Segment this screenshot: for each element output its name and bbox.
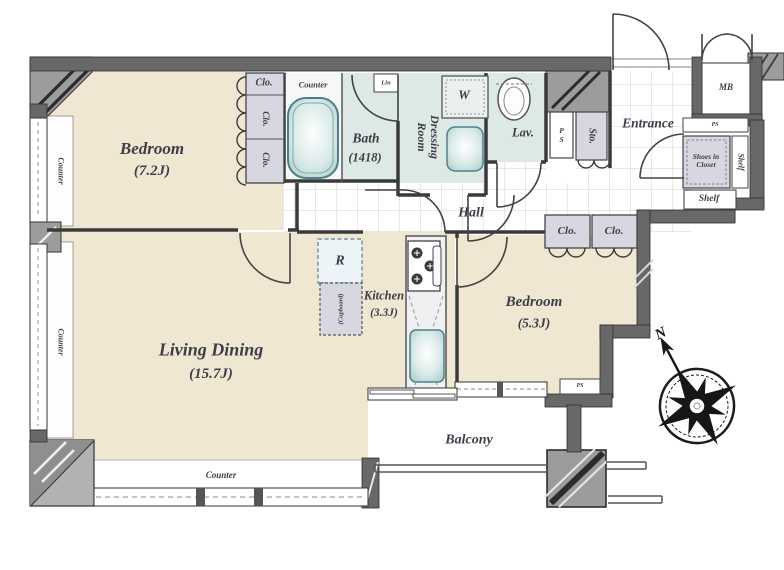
closet-label-4: Clo. bbox=[558, 226, 577, 238]
bedroom1-name: Bedroom bbox=[120, 140, 184, 158]
counter-label-left-2: Counter bbox=[56, 328, 65, 355]
window-mullion-2 bbox=[254, 488, 263, 506]
entrance-door bbox=[613, 14, 669, 70]
floor-plan-drawing bbox=[0, 0, 784, 570]
closet-label-2: Clo. bbox=[260, 111, 270, 126]
entrance-threshold bbox=[611, 59, 692, 67]
bedroom2-area: (5.3J) bbox=[518, 317, 551, 332]
floor-plan: Bedroom (7.2J) Living Dining (15.7J) Kit… bbox=[0, 0, 784, 570]
shoes-closet-label: Shoes in Closet bbox=[693, 153, 719, 169]
kitchen-name: Kitchen bbox=[364, 289, 404, 303]
balcony-rails bbox=[375, 462, 662, 503]
compass-rose bbox=[622, 316, 757, 465]
wall-left-b bbox=[30, 430, 47, 442]
balcony-label: Balcony bbox=[445, 432, 492, 447]
counter-label-bottom: Counter bbox=[206, 471, 237, 481]
bedroom2-name: Bedroom bbox=[506, 294, 563, 310]
meter-box-label: MB bbox=[719, 83, 733, 93]
stove-grill bbox=[433, 246, 441, 286]
bath-name: Bath bbox=[352, 132, 379, 147]
cupboard-label: (Cupboard) bbox=[337, 293, 344, 324]
window-mullion-1 bbox=[196, 488, 205, 506]
wall-above-bedroom2 bbox=[637, 210, 735, 223]
hall-label: Hall bbox=[458, 205, 484, 220]
pipe-space-label-1: PS bbox=[557, 126, 565, 144]
window-mullion-3 bbox=[497, 382, 503, 397]
meter-box-doors bbox=[702, 34, 752, 60]
bathtub bbox=[288, 98, 338, 178]
refrigerator-label: R bbox=[335, 253, 344, 268]
counter-label-bath: Counter bbox=[299, 80, 328, 89]
lavatory-label: Lav. bbox=[512, 126, 534, 140]
dressing-room-line1: Dressing bbox=[428, 115, 441, 159]
wall-bedroom2-east bbox=[637, 210, 650, 332]
living-dining-area: (15.7J) bbox=[189, 366, 233, 382]
closet-label-1: Clo. bbox=[256, 79, 273, 90]
pipe-space-label-2: PS bbox=[711, 122, 718, 128]
shelf-label-horizontal: Shelf bbox=[699, 194, 720, 204]
wall-right bbox=[750, 120, 764, 206]
vanity-sink bbox=[447, 127, 483, 171]
closet-label-5: Clo. bbox=[605, 226, 624, 238]
bedroom1-area: (7.2J) bbox=[134, 163, 170, 179]
pipe-space-label-3: PS bbox=[576, 383, 583, 389]
shelf-label-vertical: Shelf bbox=[736, 153, 745, 170]
storage-label: Sto. bbox=[586, 128, 597, 144]
counter-label-left-1: Counter bbox=[56, 157, 65, 184]
dressing-room-line2: Room bbox=[415, 115, 428, 159]
dressing-room-label: Dressing Room bbox=[415, 115, 441, 159]
washer-label: W bbox=[458, 88, 470, 102]
bath-area: (1418) bbox=[348, 151, 381, 165]
linen-label: Lin bbox=[381, 79, 390, 86]
shoes-closet-line2: Closet bbox=[693, 161, 719, 169]
kitchen-sink bbox=[410, 330, 444, 382]
living-dining-name: Living Dining bbox=[159, 340, 264, 359]
closet-label-3: Clo. bbox=[260, 152, 270, 167]
kitchen-area: (3.3J) bbox=[370, 307, 398, 319]
wall-balcony-east bbox=[567, 405, 581, 452]
wall-top bbox=[30, 57, 611, 71]
entrance-label: Entrance bbox=[622, 117, 674, 132]
wall-step-2v bbox=[600, 325, 613, 398]
